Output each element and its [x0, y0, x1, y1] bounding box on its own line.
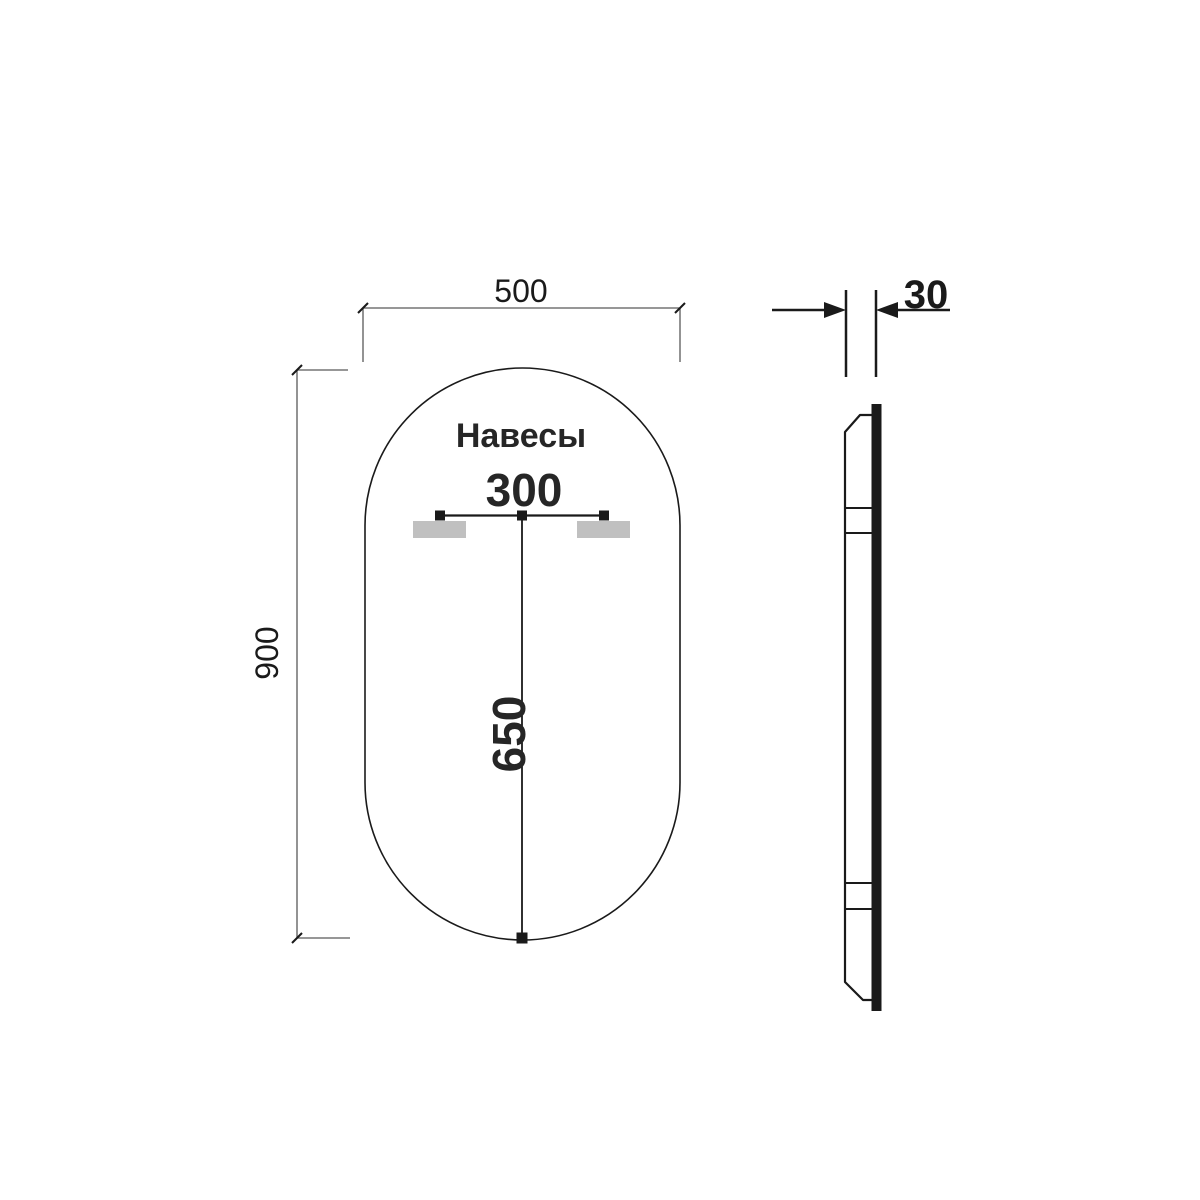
hanger-height-label: 650	[483, 696, 535, 773]
height-dimension: 900	[249, 365, 350, 943]
left-mounting-bracket	[413, 521, 466, 538]
thickness-arrow-left-pointing	[876, 302, 898, 318]
mirror-side-frame-outline	[845, 415, 872, 1000]
right-mounting-bracket	[577, 521, 630, 538]
width-dimension-label: 500	[494, 273, 547, 309]
thickness-dimension-label: 30	[904, 273, 949, 317]
hanger-height-dimension: 650	[483, 516, 535, 944]
hanger-spacing-label: 300	[486, 464, 563, 516]
mirror-side-glass-bar	[872, 404, 882, 1011]
hanger-height-marker-bottom	[517, 933, 528, 944]
height-dimension-label: 900	[249, 626, 285, 679]
technical-drawing-canvas: 500 900 Навесы 300 650	[0, 0, 1200, 1200]
mirror-dimension-drawing: 500 900 Навесы 300 650	[0, 0, 1200, 1200]
hanger-spacing-marker-left	[435, 511, 445, 521]
thickness-arrow-right-pointing	[824, 302, 846, 318]
hangers-annotation-label: Навесы	[456, 417, 586, 455]
thickness-dimension: 30	[772, 273, 950, 377]
hanger-spacing-marker-right	[599, 511, 609, 521]
hanger-spacing-dimension: 300	[435, 464, 609, 521]
width-dimension: 500	[358, 273, 685, 362]
